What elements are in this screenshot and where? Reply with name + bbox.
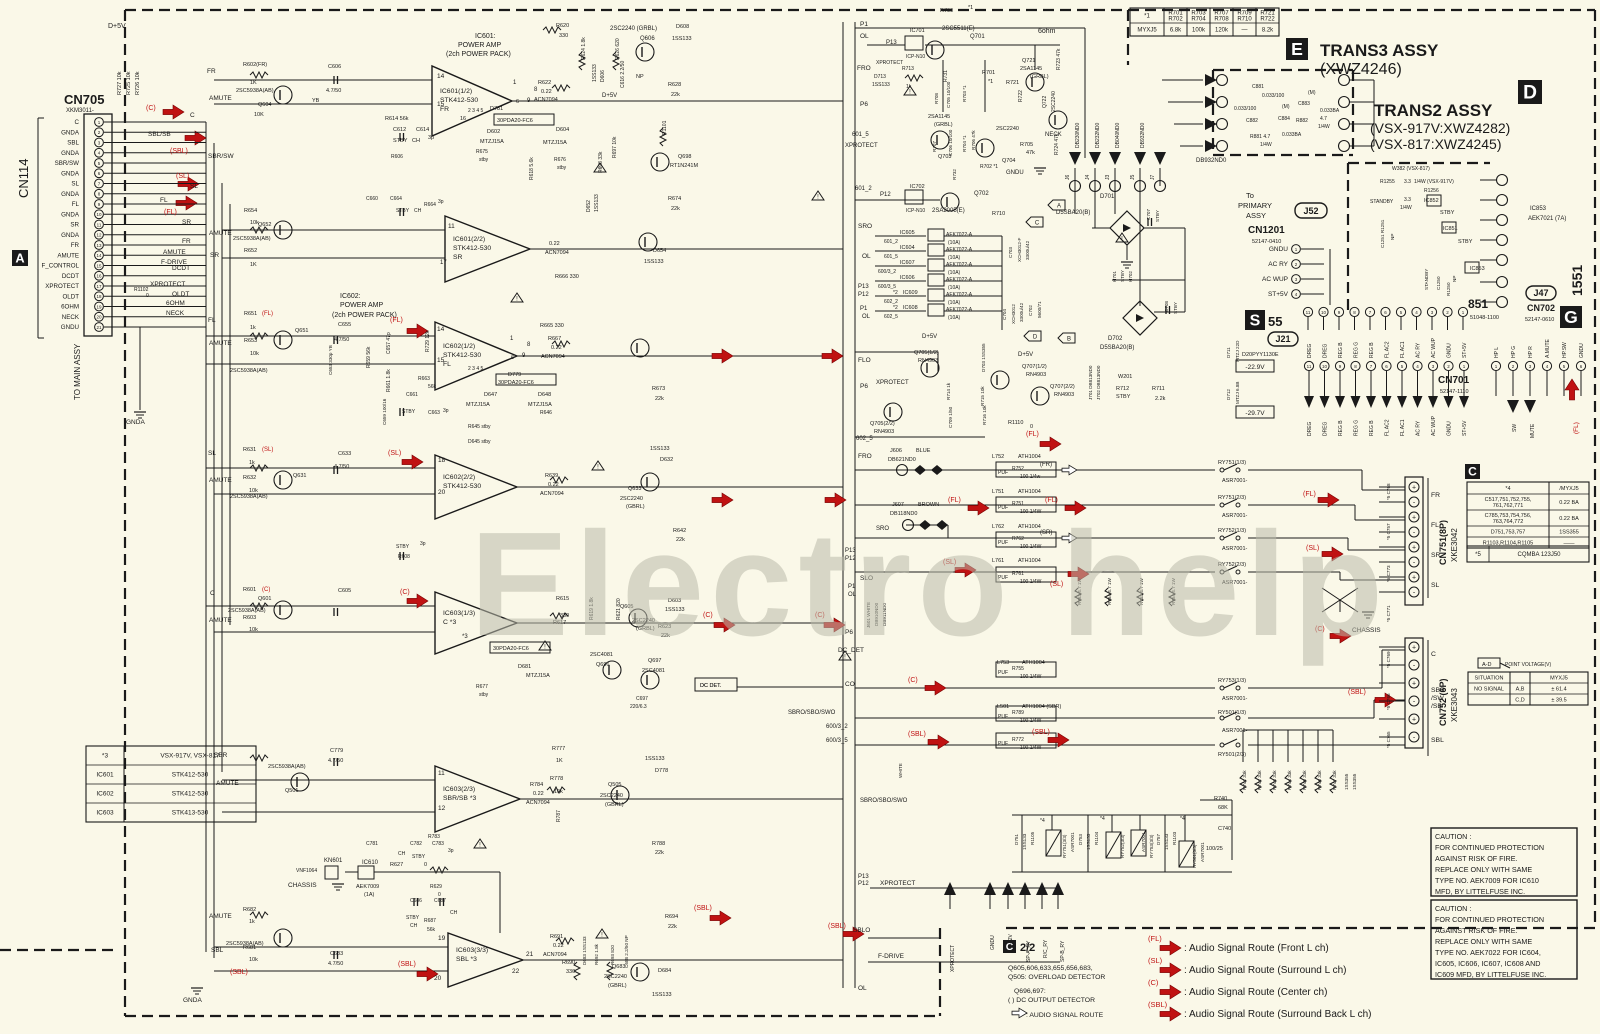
relay-switch-icon <box>1236 716 1240 720</box>
label: D <box>1523 83 1537 104</box>
label: 6 <box>1384 310 1387 315</box>
label: D711 <box>1226 347 1231 358</box>
relay-switch-icon <box>1236 686 1240 690</box>
label: R661 1.8k <box>386 369 392 392</box>
label: - <box>1413 734 1416 741</box>
label: 2SA1145 <box>928 114 950 120</box>
label: 19 <box>438 935 446 942</box>
label: STBY <box>1173 302 1178 314</box>
label: 2SC2240 (GRBL) <box>610 26 657 32</box>
label: *2 <box>893 290 898 296</box>
label: SBLO <box>853 927 870 934</box>
pin-label: GNDA <box>61 191 80 198</box>
label: 10 <box>1321 310 1327 315</box>
label: SR <box>210 252 219 259</box>
label: STBY <box>1116 394 1131 400</box>
label: 4.7/50 <box>334 337 349 343</box>
legend-arrow-icon <box>1160 1007 1181 1021</box>
label: D+5V <box>1018 352 1033 358</box>
wire-connector-icon <box>919 520 931 530</box>
junction-pin <box>1497 255 1508 266</box>
label: 10k <box>250 220 259 226</box>
label: 1/4W <box>1260 142 1272 148</box>
label: SRO <box>858 223 872 230</box>
label: R710 <box>992 211 1005 217</box>
label: 600/3_5 <box>826 738 848 744</box>
label: R772 <box>1012 737 1024 743</box>
label: RY753(3/3) <box>1149 834 1154 858</box>
label: L751 <box>992 489 1004 495</box>
label: R753 4.7 1W <box>1139 578 1144 605</box>
label: *1 <box>988 79 993 85</box>
label: GNDU <box>990 935 996 950</box>
table-cell: ± 39.5 <box>1551 698 1566 704</box>
label: 10k <box>249 488 258 494</box>
label: IC601: <box>475 33 496 40</box>
label: R1250 <box>1446 282 1451 296</box>
arrow <box>925 681 946 695</box>
label: R667 <box>548 336 561 342</box>
label: R/C_RY <box>1043 939 1049 958</box>
label: KN601 <box>324 858 343 864</box>
label: R651 <box>244 311 257 317</box>
label: L753 <box>997 660 1009 666</box>
label: P1 <box>860 21 868 28</box>
table-cell: R710 <box>1237 17 1252 23</box>
label: 3 <box>1431 310 1434 315</box>
label: - <box>1413 589 1416 596</box>
pin-label: ST+5V <box>1462 342 1468 358</box>
wire-connector-icon <box>936 520 948 530</box>
label: (C) <box>400 589 410 596</box>
label: + <box>1412 544 1416 551</box>
junction-pin <box>1217 119 1228 130</box>
label: P6 <box>860 383 868 390</box>
label: (GRBL) <box>934 122 953 128</box>
label: R697 10k <box>612 136 618 158</box>
diode-icon <box>1136 314 1144 322</box>
table-cell: /MYXJ5 <box>1559 486 1578 492</box>
label: NP <box>1452 276 1457 282</box>
label: TO MAIN ASSY <box>73 343 82 400</box>
relay-switch-icon <box>1236 503 1240 507</box>
audio-route-arrow-icon <box>1330 629 1351 643</box>
label: 2SA1145 <box>1020 66 1042 72</box>
label: SBRO/SBO/SWO <box>788 710 836 716</box>
board-edge-arrow-icon <box>1304 396 1314 408</box>
audio-route-arrow-icon <box>712 493 733 507</box>
label: (10A) <box>948 315 961 321</box>
label: (GBRL) <box>608 983 627 989</box>
label: 2SC2240 <box>620 496 643 502</box>
label: BROWN <box>918 502 939 508</box>
pin-label: C <box>75 119 80 126</box>
label: 5 <box>1401 364 1404 369</box>
label: R704 *1 <box>962 135 967 152</box>
label: RN4903 <box>918 358 938 364</box>
label: 1K <box>250 262 257 268</box>
label: 1k <box>249 919 255 925</box>
label: R619 1.8k <box>589 597 595 620</box>
label: C883 <box>1298 101 1310 107</box>
label: R789 <box>1012 710 1024 716</box>
label: D <box>1033 335 1038 341</box>
label: ASR7001 <box>1200 842 1205 862</box>
label: MTZJ15A <box>543 140 567 146</box>
label: 52147-0410 <box>1252 239 1281 245</box>
label: ASR7001 <box>1141 832 1146 852</box>
opamp-label: STK412-530 <box>443 352 481 359</box>
label: 100 1/4W <box>1020 674 1042 680</box>
junction-pin <box>1497 297 1508 308</box>
label: DB621ND0 <box>888 457 916 463</box>
table-cell: A,B <box>1516 687 1525 693</box>
label: R703 *1 <box>962 85 967 102</box>
label: 2SC4081 <box>590 652 613 658</box>
label: (SL) <box>176 173 189 180</box>
label: RN4903 <box>874 429 894 435</box>
label: C882 <box>1246 118 1258 124</box>
label: IC602: <box>340 293 361 300</box>
board-edge-arrow-icon <box>1459 396 1469 408</box>
label: 220/6.3 <box>630 704 647 710</box>
pin-label: GNDA <box>61 211 80 218</box>
label: IC851 <box>1443 226 1458 232</box>
label: D781 <box>490 106 503 112</box>
wire <box>1046 830 1061 856</box>
label: C <box>1035 221 1040 227</box>
label: 4.7/50 <box>328 961 343 967</box>
opamp-label: STK412-530 <box>440 97 478 104</box>
audio-route-arrow-icon <box>1322 547 1343 561</box>
caution-text: REPLACE ONLY WITH SAME <box>1435 937 1532 946</box>
label: P6 <box>860 101 868 108</box>
label: 7 <box>98 181 101 186</box>
label: ACN7094 <box>543 952 567 958</box>
label: 52147-0610 <box>1525 317 1554 323</box>
label: OL <box>862 314 871 320</box>
label: 16 <box>96 274 102 279</box>
arrow <box>1012 1008 1027 1018</box>
component-box <box>325 866 338 879</box>
pin-label: FL AC1 <box>1400 419 1406 436</box>
label: R762 <box>1012 536 1024 542</box>
label: 1k <box>249 460 255 466</box>
label: P6 <box>845 629 853 636</box>
label: OL <box>860 33 869 40</box>
label: 1 <box>1462 310 1465 315</box>
label: SL <box>190 183 198 190</box>
arrow <box>968 501 989 515</box>
label: FL <box>208 317 216 324</box>
label: STANDBY <box>1424 269 1429 290</box>
component-box <box>928 274 944 286</box>
label: 22k <box>661 633 670 639</box>
label: CH <box>398 851 406 857</box>
label: XCH3012-F <box>1017 238 1022 262</box>
label: CH <box>410 923 418 929</box>
resistor-icon <box>905 75 923 81</box>
label: 2SC5938A(AB) <box>228 608 266 614</box>
label: *5 C766 <box>1386 693 1391 710</box>
pin-label: AMUTE <box>57 252 79 259</box>
label: GNDA <box>183 997 202 1004</box>
label: D652 <box>586 200 592 212</box>
label: + <box>1412 716 1416 723</box>
caution-text: TYPE NO. AEK7009 FOR IC610 <box>1435 876 1539 885</box>
board-edge-arrow-icon <box>1413 396 1423 408</box>
label: C683 <box>330 951 343 957</box>
pin-label: GNDA <box>61 150 80 157</box>
component-box <box>928 304 944 316</box>
pin-label: REG B <box>1338 342 1344 358</box>
label: STBY <box>393 138 408 144</box>
label: 100 1/4W <box>1020 745 1042 751</box>
label: R727 10k <box>117 71 123 95</box>
caution-text: IC605, IC606, IC607, IC608 AND <box>1435 959 1540 968</box>
caution-text: TYPE NO. AEK7022 FOR IC604, <box>1435 948 1541 957</box>
label: D+5V <box>108 23 126 30</box>
caution-text: CAUTION : <box>1435 832 1471 841</box>
label: ASR7001- <box>1222 580 1248 586</box>
label: 1SS133 <box>665 607 685 613</box>
label: (SBL) <box>1032 729 1050 736</box>
label: R698 33k <box>598 151 604 173</box>
note-text: Q696,697: <box>1014 988 1046 995</box>
audio-route-arrow-icon <box>1040 437 1061 451</box>
label: L501 <box>997 704 1009 710</box>
signal-arrow-icon <box>1012 1008 1027 1018</box>
label: 0.033/100 <box>1234 106 1256 112</box>
label: Q705(2/2) <box>870 421 895 427</box>
label: SL <box>208 450 216 457</box>
label: RY751(3/3) <box>1062 834 1067 858</box>
label: DB932ND0 <box>1196 158 1227 164</box>
pin-label: REG B <box>1369 420 1375 436</box>
label: Q505 <box>608 782 621 788</box>
label: 601_2 <box>855 186 872 192</box>
arrow <box>955 563 976 577</box>
label: OL <box>858 985 867 992</box>
label: *4 <box>1100 816 1105 822</box>
opamp-label: STK412-530 <box>443 483 481 490</box>
caution-text: IC609 MFD, BY LITTELFUSE INC. <box>1435 970 1546 979</box>
label: (SL) <box>388 450 401 457</box>
pin-label: GNDU <box>61 324 79 331</box>
label: (SBL) <box>1348 689 1366 696</box>
label: 15 <box>437 101 445 108</box>
label: 15 <box>437 357 445 364</box>
label: XPROTECT <box>876 60 903 66</box>
label: C616 2.2/50 <box>620 61 626 88</box>
label: P13 <box>845 548 856 554</box>
label: E <box>1291 39 1303 59</box>
pin-label: REG B <box>1338 420 1344 436</box>
label: 22k <box>671 92 680 98</box>
pin-label: AC RY <box>1416 342 1422 358</box>
label: W201 <box>1118 374 1132 380</box>
label: C1250 <box>1436 276 1441 290</box>
label: RY751(2/3) <box>1218 495 1246 501</box>
label: *5 C771 <box>1386 605 1391 622</box>
label: 15 <box>96 263 102 268</box>
label: CN1201 <box>1248 225 1285 236</box>
board-edge-arrow-icon <box>1397 396 1407 408</box>
pin-label: OLDT <box>62 293 79 300</box>
label: C <box>1468 465 1477 479</box>
label: DB118ND0 <box>890 511 917 517</box>
label: FR <box>207 68 216 75</box>
label: 0.22 <box>551 345 562 351</box>
label: C706 10/100 <box>948 129 953 156</box>
label: 2 <box>1447 364 1450 369</box>
label: R1101 <box>662 120 668 135</box>
label: + <box>1412 644 1416 651</box>
label: XKE3043 <box>1450 688 1459 722</box>
label: R623 <box>658 624 671 630</box>
label: R709 <box>940 8 953 14</box>
label: (FR) <box>1040 462 1052 468</box>
label: R615 <box>556 596 569 602</box>
board-edge-arrow-icon <box>1366 396 1376 408</box>
label: GNDU <box>1006 170 1024 176</box>
label: 2 <box>1446 310 1449 315</box>
pin-label: A.MUTE <box>1545 338 1551 358</box>
arrow <box>1065 501 1086 515</box>
pin-label: DREG <box>1307 421 1313 436</box>
label: (FL) <box>390 317 403 324</box>
table-cell: STK412-530 <box>172 772 209 779</box>
legend-tag: (FL) <box>1148 934 1162 943</box>
label: SP-B_RY <box>1060 940 1066 962</box>
label: C884 <box>1278 116 1290 122</box>
label: C1251 R1251 <box>1380 219 1385 248</box>
label: C740 <box>1218 826 1231 832</box>
label: DC DET. <box>700 683 722 689</box>
label: SW <box>1512 424 1518 432</box>
label: (GRBL) <box>1030 74 1049 80</box>
label: D713 <box>874 74 886 80</box>
opamp-label: IC602(1/2) <box>443 343 475 350</box>
label: Q701 <box>970 34 985 40</box>
label: 1/4W (VSX-917V) <box>1414 179 1454 185</box>
label: 0 <box>424 862 427 868</box>
transistor-icon <box>274 331 292 349</box>
label: 56k <box>427 927 436 933</box>
label: CH <box>450 910 458 916</box>
label: R708 <box>934 93 939 104</box>
label: D681 <box>518 664 531 670</box>
label: J5 <box>1130 175 1136 181</box>
label: (M) <box>1282 104 1290 110</box>
label: 6 <box>1580 364 1583 369</box>
caution-text: FOR CONTINUED PROTECTION <box>1435 843 1544 852</box>
label: SR <box>182 219 191 226</box>
arrow <box>1322 547 1343 561</box>
transistor-icon <box>641 473 659 491</box>
label: C664 <box>390 196 402 202</box>
label: 2SC5938A(AB) <box>268 764 306 770</box>
label: R747 33k <box>1332 770 1337 790</box>
label: C657 47p <box>386 332 392 354</box>
pin-label: FL AC1 <box>1400 341 1406 358</box>
label: AMUTE <box>163 249 186 256</box>
label: R693 820 <box>610 945 615 965</box>
label: 51048-1100 <box>1470 315 1499 321</box>
label: C661 <box>406 392 418 398</box>
label: 2/2 <box>1020 942 1035 954</box>
label: Q697 <box>648 658 661 664</box>
label: 9 <box>98 202 101 207</box>
label: P12 <box>858 292 869 298</box>
label: XPROTECT <box>876 380 909 386</box>
audio-route-arrow-icon <box>712 349 733 363</box>
label: (FL) <box>164 209 177 216</box>
arrow <box>1062 465 1077 475</box>
board-edge-arrow-icon <box>1205 118 1217 130</box>
label: D753 <box>1078 834 1083 845</box>
label: XKE3042 <box>1450 528 1459 562</box>
table-cell: IC601 <box>96 772 114 779</box>
label: 30PDA20-FC6 <box>498 380 534 386</box>
label: AEK7022-A <box>946 307 973 313</box>
label: J4 <box>1085 175 1091 181</box>
label: 16 <box>460 116 466 122</box>
label: 100 1/4W <box>1020 579 1042 585</box>
audio-route-arrow-icon <box>822 349 843 363</box>
label: R645 stby <box>468 424 491 430</box>
label: J7 <box>1150 175 1156 181</box>
label: BLUE <box>916 448 931 454</box>
label: 4 <box>1415 310 1418 315</box>
label: R694 <box>665 914 678 920</box>
label: FRO <box>857 65 871 72</box>
label: 3 <box>1295 277 1298 282</box>
label: R783 <box>428 834 440 840</box>
label: R626 620 <box>615 38 621 60</box>
relay-switch-icon <box>1236 570 1240 574</box>
label: 17 <box>440 260 447 266</box>
board-edge-arrow-icon <box>1205 96 1217 108</box>
label: - <box>1413 559 1416 566</box>
pin-label: GNDU <box>1447 343 1453 358</box>
label: AMUTE <box>209 95 232 102</box>
table-cell: R704 <box>1191 17 1206 23</box>
label: R618 5.6k <box>529 157 535 180</box>
label: WHITE <box>898 763 903 778</box>
junction-pin <box>1497 215 1508 226</box>
label: 6 <box>511 355 514 361</box>
label: R743 33k <box>1272 770 1277 790</box>
pin-label: SBL <box>1431 737 1444 744</box>
label: 5 <box>98 161 101 166</box>
arrow <box>1040 437 1061 451</box>
label: PUF <box>998 505 1008 511</box>
label: 601_5 <box>852 132 869 138</box>
label: CO <box>845 681 855 688</box>
audio-route-arrow-icon <box>1065 501 1086 515</box>
label: - <box>1413 698 1416 705</box>
label: R729 12k <box>425 330 431 352</box>
label: OLDT <box>172 291 189 298</box>
pin-label: ST+5V <box>1462 420 1468 436</box>
label: ASSY <box>1246 211 1266 220</box>
junction-pin <box>1497 175 1508 186</box>
label: (10A) <box>948 240 961 246</box>
label: Q722 <box>1042 96 1048 108</box>
pin-label: SR <box>70 222 79 229</box>
board-edge-arrow-icon <box>1069 152 1081 165</box>
